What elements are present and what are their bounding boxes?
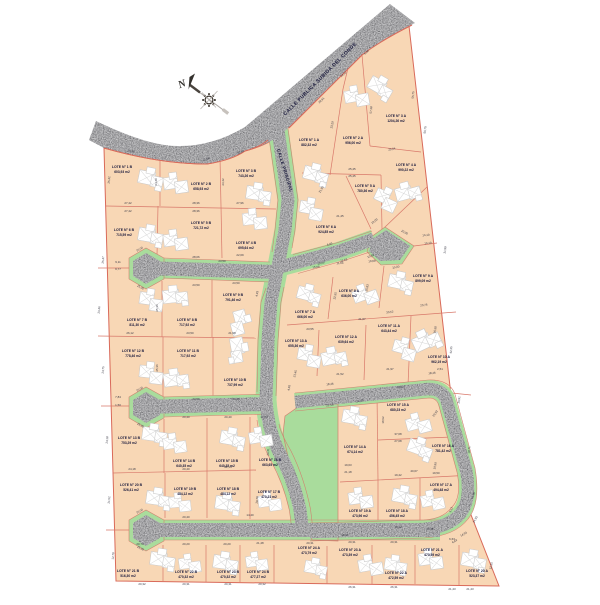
svg-text:516,30 m2: 516,30 m2 <box>120 574 136 578</box>
svg-text:25,45: 25,45 <box>348 174 356 178</box>
svg-text:LOTE N° 20 B: LOTE N° 20 B <box>120 483 143 487</box>
svg-text:20,32: 20,32 <box>258 582 266 586</box>
svg-text:LOTE N° 18 A: LOTE N° 18 A <box>386 509 409 513</box>
svg-text:20,40: 20,40 <box>182 415 190 419</box>
svg-text:LOTE N° 16 B: LOTE N° 16 B <box>259 458 282 462</box>
svg-text:658,93 m2: 658,93 m2 <box>193 187 209 191</box>
svg-text:21,43: 21,43 <box>448 587 456 591</box>
svg-text:23,46: 23,46 <box>97 306 102 314</box>
svg-text:LOTE N° 23 B: LOTE N° 23 B <box>217 570 240 574</box>
svg-text:12,83: 12,83 <box>260 415 268 419</box>
svg-text:20,31: 20,31 <box>306 541 314 545</box>
svg-text:666,00 m2: 666,00 m2 <box>297 315 313 319</box>
svg-text:14,10: 14,10 <box>424 241 432 246</box>
svg-text:9,11: 9,11 <box>115 260 121 264</box>
svg-text:20,70: 20,70 <box>255 496 260 504</box>
svg-text:42,35: 42,35 <box>449 346 454 354</box>
svg-text:LOTE N° 12 B: LOTE N° 12 B <box>122 349 145 353</box>
svg-text:22,14: 22,14 <box>224 465 232 469</box>
svg-text:484,12 m2: 484,12 m2 <box>220 492 236 496</box>
svg-text:LOTE N° 22 A: LOTE N° 22 A <box>385 571 408 575</box>
svg-text:24,18: 24,18 <box>105 436 110 444</box>
svg-text:2,51: 2,51 <box>437 367 443 371</box>
svg-text:20,20: 20,20 <box>182 542 190 546</box>
svg-text:55,75: 55,75 <box>411 91 416 99</box>
svg-text:26,31: 26,31 <box>348 585 356 589</box>
svg-text:LOTE N° 19 A: LOTE N° 19 A <box>349 509 372 513</box>
svg-text:LOTE N° 14 B: LOTE N° 14 B <box>173 459 196 463</box>
svg-text:28,36: 28,36 <box>192 209 200 213</box>
svg-text:23,50: 23,50 <box>192 283 200 287</box>
svg-text:21,18: 21,18 <box>344 470 352 474</box>
svg-text:473,96 m2: 473,96 m2 <box>352 514 368 518</box>
svg-text:470,21 m2: 470,21 m2 <box>261 495 277 499</box>
svg-text:LOTE N° 5 B: LOTE N° 5 B <box>191 221 212 225</box>
svg-text:20,31: 20,31 <box>390 540 398 544</box>
svg-text:695,64 m2: 695,64 m2 <box>238 246 254 250</box>
svg-text:LOTE N° 15 B: LOTE N° 15 B <box>216 459 239 463</box>
svg-text:28,36: 28,36 <box>192 201 200 205</box>
svg-text:780,36 m2: 780,36 m2 <box>357 189 373 193</box>
svg-text:19,42: 19,42 <box>394 473 402 477</box>
svg-text:21,97: 21,97 <box>386 367 394 371</box>
svg-text:473,39 m2: 473,39 m2 <box>424 553 440 557</box>
svg-text:19,62: 19,62 <box>396 385 404 389</box>
svg-text:778,46 m2: 778,46 m2 <box>125 354 141 358</box>
svg-text:22,69: 22,69 <box>236 253 244 257</box>
svg-text:20,31: 20,31 <box>348 540 356 544</box>
svg-text:23,50: 23,50 <box>186 331 194 335</box>
svg-text:674,14 m2: 674,14 m2 <box>347 450 363 454</box>
svg-text:18,92: 18,92 <box>381 416 385 424</box>
svg-text:7,84: 7,84 <box>115 395 121 399</box>
svg-text:473,79 m2: 473,79 m2 <box>301 551 317 555</box>
svg-text:753,29 m2: 753,29 m2 <box>121 441 137 445</box>
svg-text:LOTE N° 6 A: LOTE N° 6 A <box>316 225 337 229</box>
svg-text:LOTE N° 17 B: LOTE N° 17 B <box>258 490 281 494</box>
svg-text:20,40: 20,40 <box>224 415 232 419</box>
svg-text:25,36: 25,36 <box>155 304 159 312</box>
svg-text:20,70: 20,70 <box>136 542 144 546</box>
svg-text:21,48: 21,48 <box>256 541 264 545</box>
svg-text:781,42 m2: 781,42 m2 <box>435 449 451 453</box>
svg-text:LOTE N° 3 A: LOTE N° 3 A <box>386 114 407 118</box>
svg-text:57,38: 57,38 <box>369 106 374 114</box>
svg-text:20,40: 20,40 <box>182 515 190 519</box>
svg-text:LOTE N° 8 A: LOTE N° 8 A <box>339 289 360 293</box>
svg-text:603,93 m2: 603,93 m2 <box>114 170 130 174</box>
svg-text:21,52: 21,52 <box>107 496 112 504</box>
svg-text:26,12: 26,12 <box>126 331 134 335</box>
svg-text:20,20: 20,20 <box>223 542 231 546</box>
svg-text:721,72 m2: 721,72 m2 <box>193 226 209 230</box>
svg-text:40,67: 40,67 <box>410 469 418 473</box>
svg-text:21,52: 21,52 <box>336 372 344 376</box>
svg-text:LOTE N° 1 B: LOTE N° 1 B <box>112 165 133 169</box>
svg-text:LOTE N° 22 B: LOTE N° 22 B <box>175 570 198 574</box>
svg-text:20,40: 20,40 <box>182 467 190 471</box>
svg-text:LOTE N° 14 A: LOTE N° 14 A <box>344 445 367 449</box>
svg-text:717,92 m2: 717,92 m2 <box>179 323 195 327</box>
svg-text:470,32 m2: 470,32 m2 <box>220 575 236 579</box>
svg-text:636,00 m2: 636,00 m2 <box>341 294 357 298</box>
svg-text:23,50: 23,50 <box>232 281 240 285</box>
svg-text:LOTE N° 4 A: LOTE N° 4 A <box>396 163 417 167</box>
svg-text:655,36 m2: 655,36 m2 <box>288 344 304 348</box>
svg-text:523,37 m2: 523,37 m2 <box>469 574 485 578</box>
svg-text:23,42: 23,42 <box>221 178 225 186</box>
svg-text:882,32 m2: 882,32 m2 <box>301 143 317 147</box>
svg-text:791,46 m2: 791,46 m2 <box>225 298 241 302</box>
svg-text:LOTE N° 10 A: LOTE N° 10 A <box>428 355 451 359</box>
svg-text:LOTE N° 2 B: LOTE N° 2 B <box>191 182 212 186</box>
svg-text:LOTE N° 17 A: LOTE N° 17 A <box>430 483 453 487</box>
svg-text:LOTE N° 13 A: LOTE N° 13 A <box>285 339 308 343</box>
svg-text:19,50: 19,50 <box>432 471 440 475</box>
svg-text:18,46: 18,46 <box>326 382 334 387</box>
svg-text:19,63: 19,63 <box>344 463 352 467</box>
svg-text:LOTE N° 9 A: LOTE N° 9 A <box>413 274 434 278</box>
svg-text:899,09 m2: 899,09 m2 <box>415 279 431 283</box>
svg-text:19,42: 19,42 <box>394 525 402 529</box>
svg-text:LOTE N° 23 A: LOTE N° 23 A <box>339 548 362 552</box>
svg-text:20,31: 20,31 <box>182 582 190 586</box>
svg-text:LOTE N° 3 B: LOTE N° 3 B <box>236 169 257 173</box>
svg-text:27,42: 27,42 <box>124 201 132 205</box>
svg-text:456,45 m2: 456,45 m2 <box>389 514 405 518</box>
svg-text:LOTE N° 18 B: LOTE N° 18 B <box>217 487 240 491</box>
svg-text:1204,26 m2: 1204,26 m2 <box>387 119 405 123</box>
svg-text:26,31: 26,31 <box>390 585 398 589</box>
svg-text:LOTE N° 21 A: LOTE N° 21 A <box>421 548 444 552</box>
svg-text:18,71: 18,71 <box>467 446 472 454</box>
svg-text:16,36: 16,36 <box>341 533 349 537</box>
svg-text:LOTE N° 11 A: LOTE N° 11 A <box>378 324 400 328</box>
svg-text:21,67: 21,67 <box>358 317 366 321</box>
svg-text:24,40: 24,40 <box>154 178 158 186</box>
svg-text:680,23 m2: 680,23 m2 <box>390 408 406 412</box>
svg-text:LOTE N° 19 B: LOTE N° 19 B <box>174 487 197 491</box>
svg-text:LOTE N° 21 B: LOTE N° 21 B <box>117 569 140 573</box>
svg-text:16,38: 16,38 <box>426 527 434 531</box>
svg-text:20,32: 20,32 <box>138 582 146 586</box>
svg-text:LOTE N° 24 A: LOTE N° 24 A <box>298 546 321 550</box>
svg-text:27,42: 27,42 <box>124 209 132 213</box>
svg-text:639,64 m2: 639,64 m2 <box>338 340 354 344</box>
svg-text:494,48 m2: 494,48 m2 <box>433 488 449 492</box>
svg-text:25,36: 25,36 <box>155 364 159 372</box>
svg-text:LOTE N° 15 A: LOTE N° 15 A <box>387 403 410 407</box>
svg-text:990,22 m2: 990,22 m2 <box>398 168 414 172</box>
svg-text:811,30 m2: 811,30 m2 <box>129 323 145 327</box>
svg-text:23,55: 23,55 <box>306 327 314 331</box>
svg-text:LOTE N° 2 A: LOTE N° 2 A <box>343 136 364 140</box>
svg-text:21,43: 21,43 <box>466 587 474 591</box>
svg-text:21,45: 21,45 <box>336 214 344 218</box>
svg-text:25,42: 25,42 <box>107 176 112 184</box>
svg-text:LOTE N° 5 A: LOTE N° 5 A <box>355 184 376 188</box>
svg-text:LOTE N° 13 B: LOTE N° 13 B <box>118 436 141 440</box>
svg-text:962,19 m2: 962,19 m2 <box>431 360 447 364</box>
svg-text:37,68: 37,68 <box>394 432 402 436</box>
svg-text:9,77: 9,77 <box>115 267 121 271</box>
svg-text:LOTE N° 16 A: LOTE N° 16 A <box>432 444 455 448</box>
svg-text:477,27 m2: 477,27 m2 <box>250 575 266 579</box>
svg-text:LOTE N° 6 B: LOTE N° 6 B <box>114 228 135 232</box>
svg-text:LOTE N° 1 A: LOTE N° 1 A <box>299 138 320 142</box>
svg-text:663,65 m2: 663,65 m2 <box>262 463 278 467</box>
svg-text:LOTE N° 20 A: LOTE N° 20 A <box>466 569 489 573</box>
svg-text:20,31: 20,31 <box>266 448 270 456</box>
svg-text:484,12 m2: 484,12 m2 <box>177 492 193 496</box>
svg-text:715,59 m2: 715,59 m2 <box>116 233 132 237</box>
svg-text:924,85 m2: 924,85 m2 <box>318 230 334 234</box>
svg-text:23,45: 23,45 <box>232 397 240 401</box>
svg-text:10,69: 10,69 <box>368 259 376 264</box>
svg-text:737,99 m2: 737,99 m2 <box>227 383 243 387</box>
svg-text:956,00 m2: 956,00 m2 <box>345 141 361 145</box>
svg-text:24,18: 24,18 <box>128 467 136 471</box>
svg-text:470,32 m2: 470,32 m2 <box>178 575 194 579</box>
svg-text:23,50: 23,50 <box>192 397 200 401</box>
svg-text:23,50: 23,50 <box>218 259 226 263</box>
svg-text:LOTE N° 10 B: LOTE N° 10 B <box>224 378 247 382</box>
svg-text:LOTE N° 8 B: LOTE N° 8 B <box>177 318 198 322</box>
svg-text:28,06: 28,06 <box>192 255 200 259</box>
svg-text:LOTE N° 7 A: LOTE N° 7 A <box>295 310 316 314</box>
svg-text:743,26 m2: 743,26 m2 <box>238 174 254 178</box>
svg-text:717,92 m2: 717,92 m2 <box>180 354 196 358</box>
svg-text:473,39 m2: 473,39 m2 <box>342 553 358 557</box>
svg-text:LOTE N° 4 B: LOTE N° 4 B <box>236 241 257 245</box>
svg-text:25,47: 25,47 <box>101 256 106 264</box>
svg-text:12,70: 12,70 <box>111 552 116 560</box>
svg-text:21,98: 21,98 <box>228 331 236 335</box>
svg-text:27,68: 27,68 <box>394 439 402 443</box>
svg-text:27,96: 27,96 <box>236 201 244 205</box>
svg-text:LOTE N° 9 B: LOTE N° 9 B <box>223 293 244 297</box>
svg-text:24,75: 24,75 <box>101 366 106 374</box>
svg-text:18,46: 18,46 <box>428 371 436 376</box>
svg-text:LOTE N° 11 B: LOTE N° 11 B <box>177 349 200 353</box>
svg-text:526,41 m2: 526,41 m2 <box>123 488 139 492</box>
svg-text:LOTE N° 24 B: LOTE N° 24 B <box>247 570 270 574</box>
svg-text:14,10: 14,10 <box>422 233 430 238</box>
svg-text:14,40: 14,40 <box>246 513 254 517</box>
svg-text:1,50: 1,50 <box>115 403 121 407</box>
svg-text:25,45: 25,45 <box>348 167 356 171</box>
svg-text:20,31: 20,31 <box>224 582 232 586</box>
svg-text:472,59 m2: 472,59 m2 <box>388 576 404 580</box>
svg-text:LOTE N° 12 A: LOTE N° 12 A <box>335 335 358 339</box>
svg-text:643,44 m2: 643,44 m2 <box>381 329 397 333</box>
svg-text:LOTE N° 7 B: LOTE N° 7 B <box>127 318 148 322</box>
